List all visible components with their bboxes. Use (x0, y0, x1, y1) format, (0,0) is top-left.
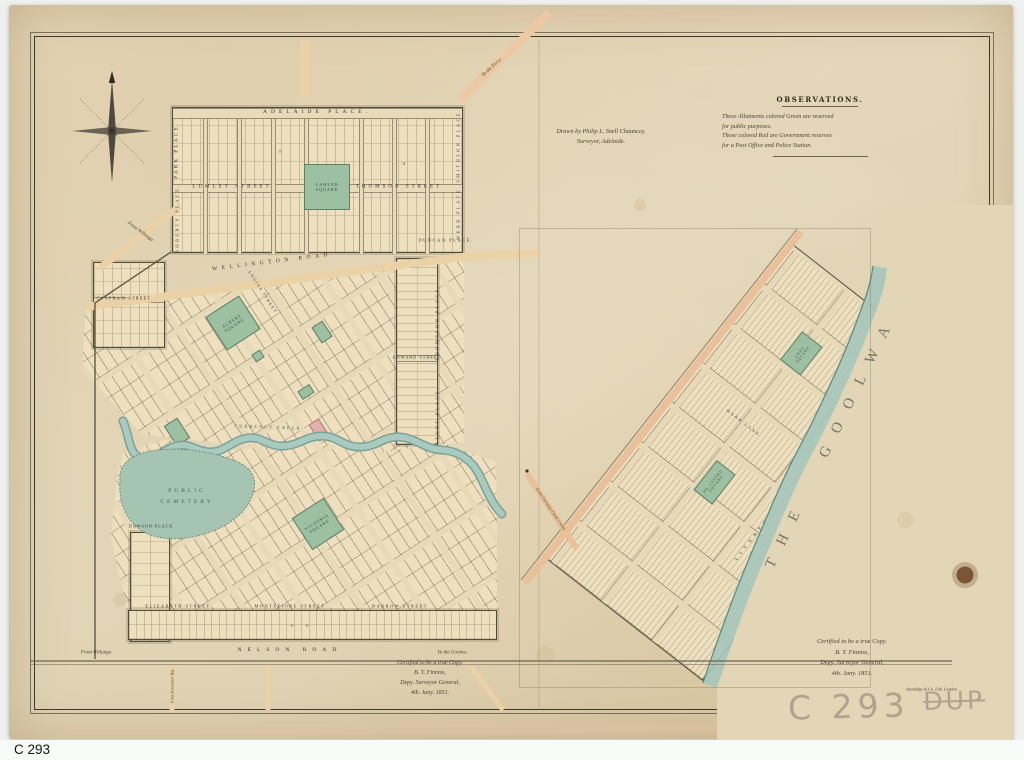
albert-square-label: ALBERT SQUARE (218, 311, 249, 336)
left-map-top-section: GAWLER SQUARE (172, 107, 463, 253)
barrow-street-label: BARROW STREET (372, 604, 428, 609)
certification-line: 4th. Jany. 1851. (817, 669, 887, 680)
adelaide-place-label: ADELAIDE PLACE. (263, 109, 371, 115)
certification-line: 4th. Jany. 1851. (397, 689, 463, 699)
nelson-road-frontage-rows (128, 610, 497, 640)
observations-end-rule (773, 156, 868, 157)
pencil-catalogue-stamp: C 293 DUP (788, 683, 986, 727)
gawler-square-label: GAWLER SQUARE (310, 182, 344, 192)
pen-cross-mark: × (290, 622, 294, 630)
observations-block: OBSERVATIONS. These Allotments colored G… (722, 95, 918, 162)
thomson-street-label: THOMSON STREET (356, 185, 442, 190)
certification-line: Certified to be a true Copy. (817, 637, 887, 648)
catalogue-caption: C 293 (14, 742, 50, 757)
public-cemetery-label: PUBLIC CEMETERY (152, 486, 222, 508)
observations-line: Those colored Red are Government reserve… (722, 131, 918, 141)
clapham-street-subsection (93, 262, 165, 348)
lumley-street-label: LUMLEY STREET (192, 185, 271, 190)
gawler-square: GAWLER SQUARE (304, 164, 350, 210)
pen-cross-mark: × (402, 160, 406, 168)
certification-line: Depy. Surveyor General, (817, 658, 887, 669)
drawn-by-note: Drawn by Philip L. Snell Chauncey, Surve… (556, 127, 645, 147)
thompson-place-label: THOMPSON PLACE. (435, 284, 440, 361)
from-willunga-note-sw: From Willunga (81, 651, 111, 656)
observations-line: These Allotments colored Green are reser… (722, 112, 918, 122)
certification-line: B. T. Finniss, (817, 647, 887, 658)
clapham-street-label: CLAPHAM STREET (97, 296, 152, 301)
certification-line: Depy. Surveyor General, (397, 679, 463, 689)
duncan-place-label: DUNCAN PLACE. (418, 238, 473, 243)
webb-place-label: WEBB PLACE. (456, 184, 461, 240)
observations-title: OBSERVATIONS. (722, 95, 918, 104)
certification-left: Certified to be a true Copy. B. T. Finni… (397, 659, 463, 699)
observations-title-rule (782, 106, 858, 107)
observations-line: for a Post Office and Police Station. (722, 141, 918, 151)
from-encounter-bay-note: From Encounter Bay (170, 669, 175, 703)
observations-line: for public purposes. (722, 122, 918, 132)
drawn-by-line-2: Surveyor, Adelaide. (556, 137, 645, 147)
drawn-by-line-1: Drawn by Philip L. Snell Chauncey, (556, 127, 645, 137)
smithson-place-label: SMITHSON PLACE. (456, 107, 461, 182)
elizabeth-street-label: ELIZABETH STREET (145, 604, 210, 609)
scanned-map-sheet: GAWLER SQUARE ALBERT SQUARE VICTORIA SQU… (0, 0, 1024, 760)
stamp-number: C 293 (788, 685, 911, 727)
certification-line: B. T. Finniss, (397, 669, 463, 679)
pen-cross-mark: × (305, 622, 309, 630)
roberts-place-label: ROBERTS PLACE. (175, 183, 180, 253)
certification-right: Certified to be a true Copy. B. T. Finni… (817, 637, 887, 679)
nelson-road-label: NELSON ROAD (238, 647, 343, 653)
stamp-dup-struck: DUP (923, 685, 985, 716)
caption-strip (0, 740, 1024, 760)
to-the-goolwa-note: To the Goolwa (437, 651, 466, 656)
cross-street (271, 119, 276, 254)
montefiore-street-label: MONTEFIORE STREET (255, 604, 326, 609)
dawson-place-label: DAWSON PLACE. (129, 524, 175, 529)
thompson-place-subsection (396, 258, 438, 445)
certification-line: Certified to be a true Copy. (397, 659, 463, 669)
park-place-label: PARK PLACE. (175, 121, 180, 178)
pen-cross-mark: × (278, 148, 282, 156)
victoria-square-label: VICTORIA SQUARE (302, 511, 334, 537)
sturt-place-label: STURT PLACE. (435, 385, 440, 444)
